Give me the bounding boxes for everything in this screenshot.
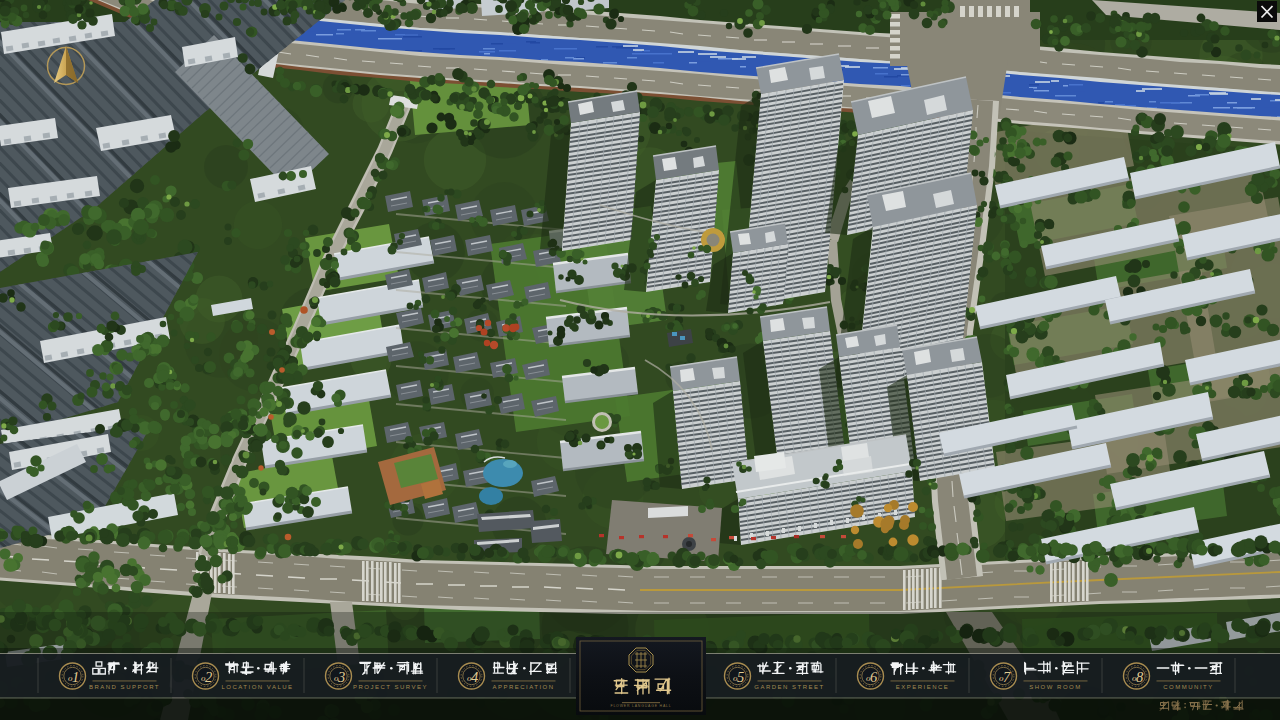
svg-text:1: 1 (72, 669, 79, 685)
svg-text:BRAND SUPPORT: BRAND SUPPORT (89, 684, 160, 690)
svg-text:FLOWER LANGUAGE HALL: FLOWER LANGUAGE HALL (610, 704, 671, 708)
svg-text:5: 5 (737, 669, 744, 685)
svg-text:6: 6 (870, 669, 878, 685)
svg-text:LOCATION VALUE: LOCATION VALUE (221, 684, 293, 690)
svg-text:8: 8 (1136, 669, 1144, 685)
svg-text:COMMUNITY: COMMUNITY (1163, 684, 1214, 690)
svg-text:2: 2 (205, 669, 212, 685)
svg-text:7: 7 (1003, 669, 1011, 685)
svg-text:GARDEN STREET: GARDEN STREET (754, 684, 825, 690)
svg-text:SHOW ROOM: SHOW ROOM (1029, 684, 1082, 690)
svg-text:APPRECIATION: APPRECIATION (492, 684, 554, 690)
svg-text:PROJECT SURVEY: PROJECT SURVEY (353, 684, 428, 690)
svg-text:3: 3 (337, 669, 345, 685)
svg-text:EXPERIENCE: EXPERIENCE (896, 684, 950, 690)
svg-text:4: 4 (471, 669, 478, 685)
